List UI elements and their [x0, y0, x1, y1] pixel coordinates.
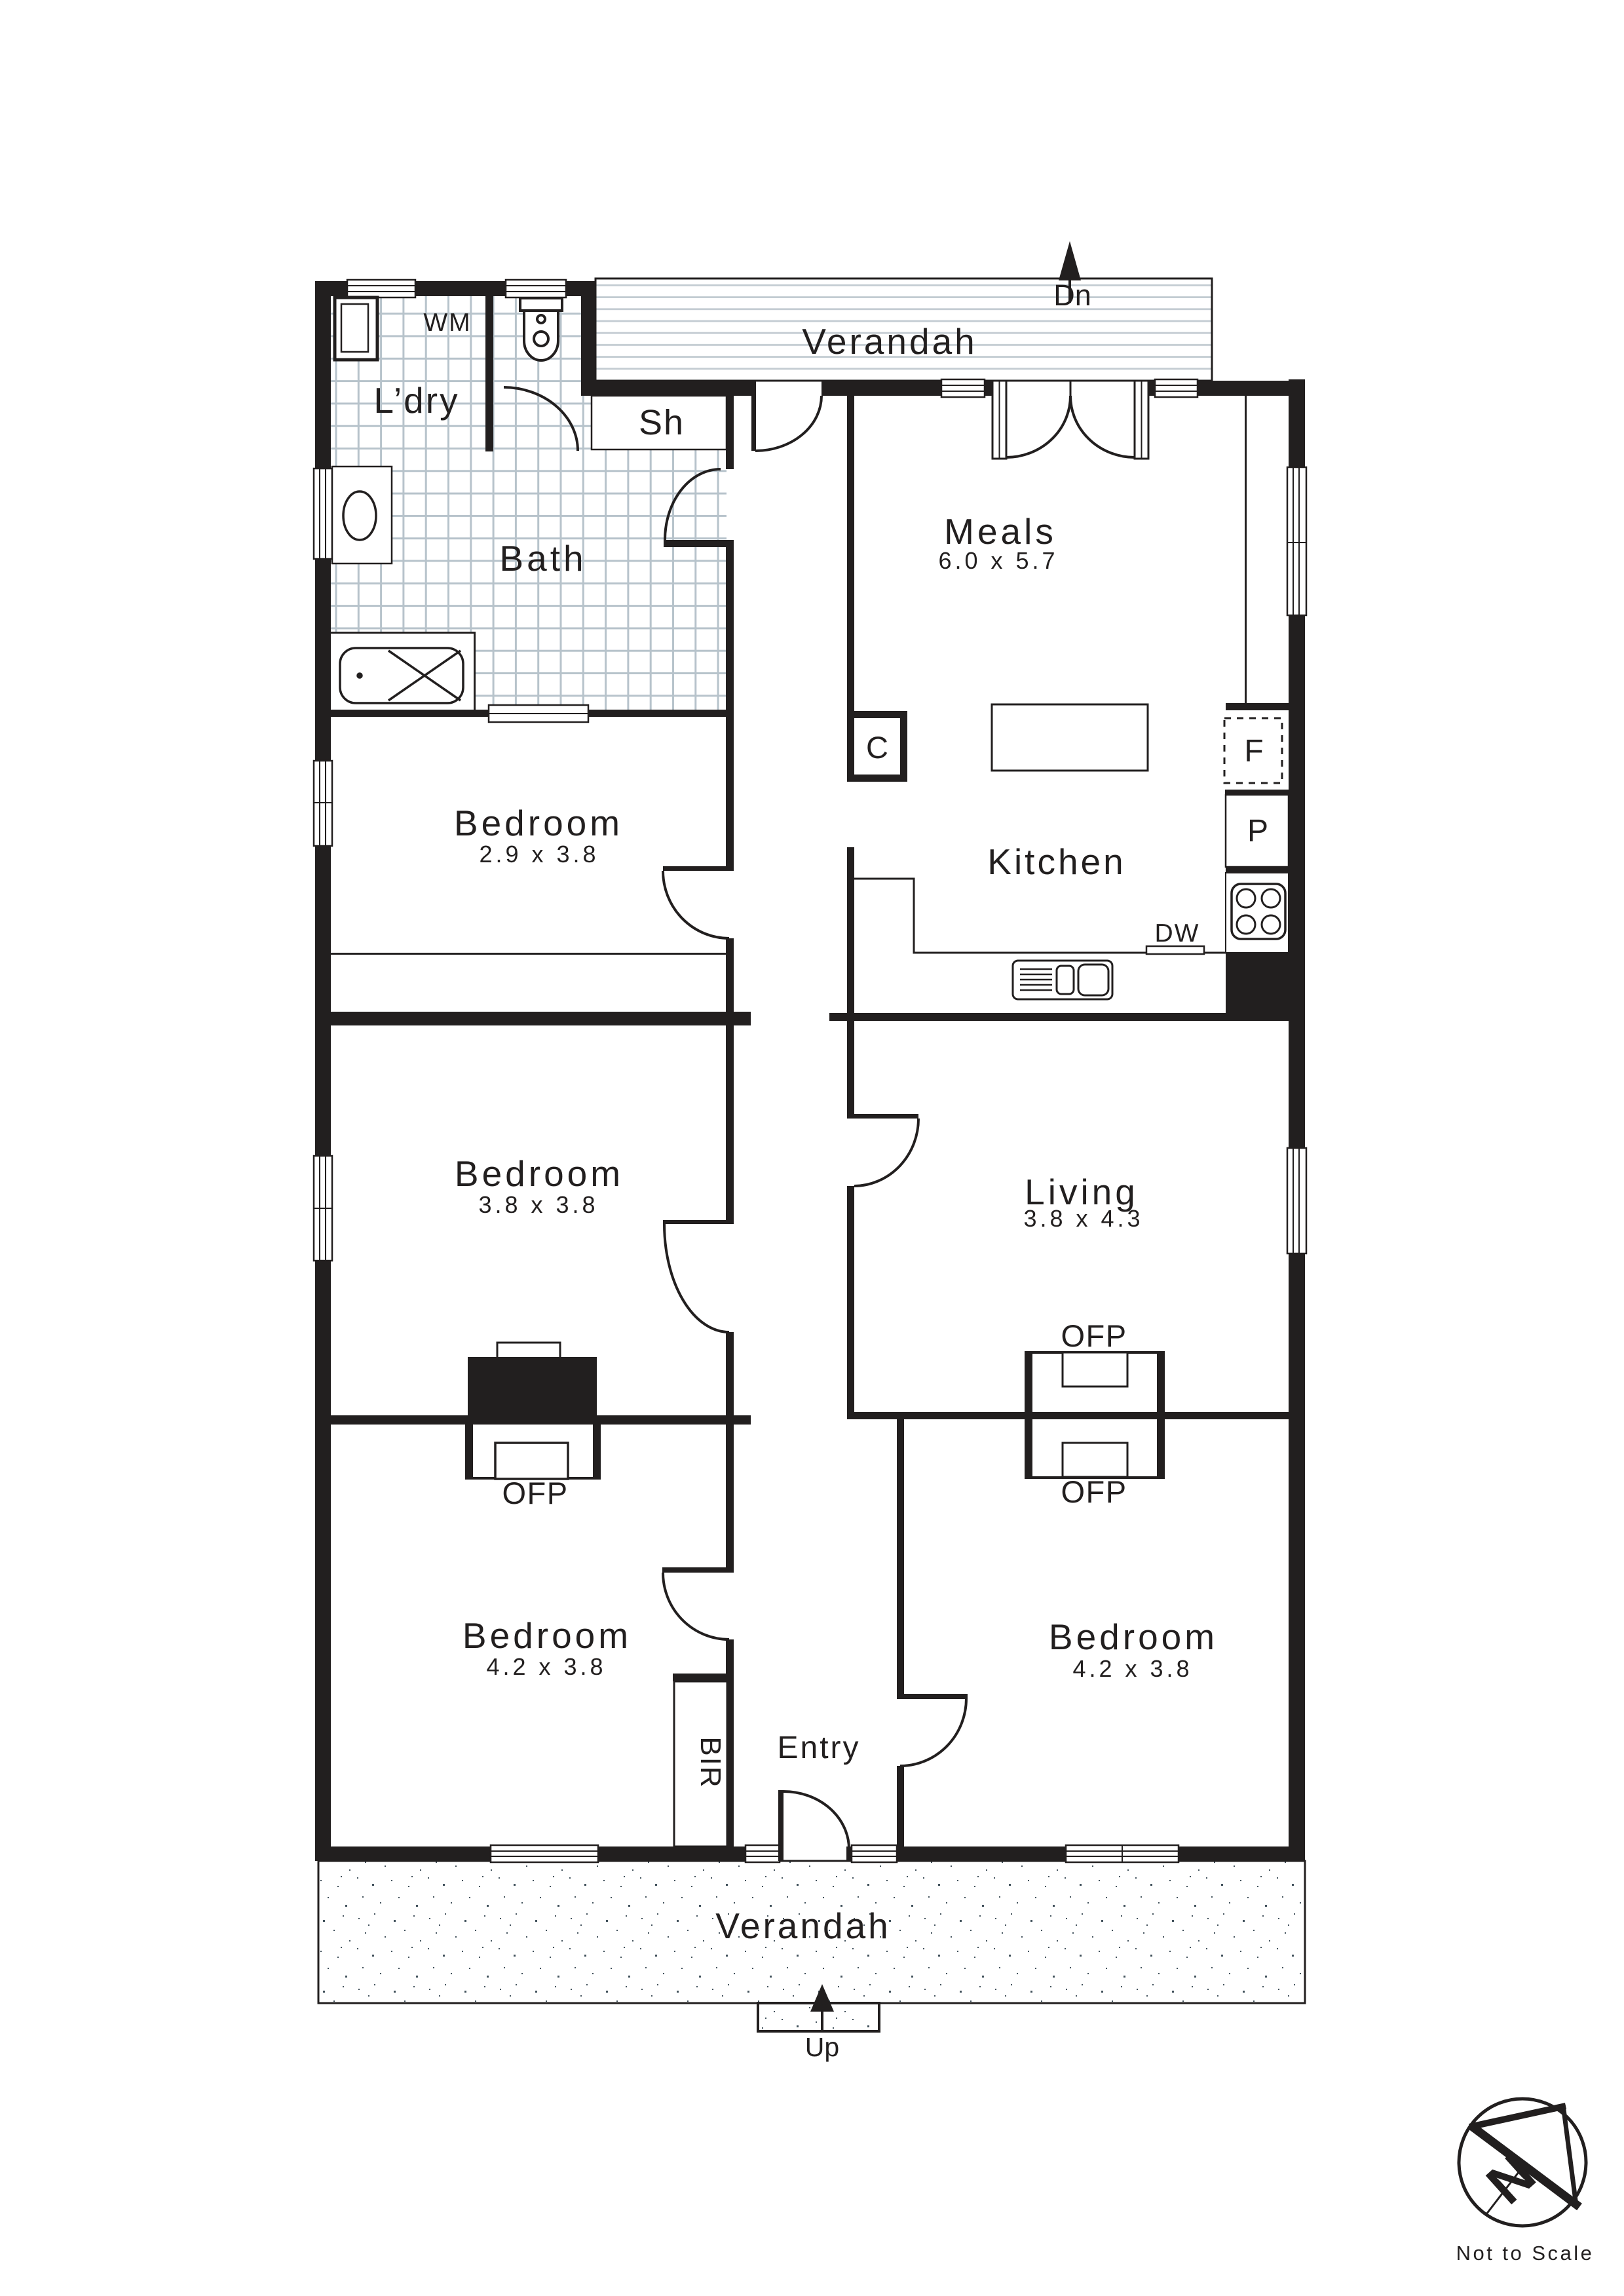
svg-text:OFP: OFP	[1061, 1474, 1127, 1509]
svg-text:Bath: Bath	[499, 538, 586, 579]
svg-text:OFP: OFP	[502, 1476, 568, 1510]
svg-text:Kitchen: Kitchen	[987, 841, 1125, 882]
svg-text:L’dry: L’dry	[373, 380, 459, 421]
svg-text:WM: WM	[423, 309, 471, 337]
svg-text:Verandah: Verandah	[802, 321, 977, 362]
svg-text:Entry: Entry	[777, 1731, 860, 1765]
svg-text:3.8 x 4.3: 3.8 x 4.3	[1023, 1205, 1143, 1232]
svg-text:4.2 x 3.8: 4.2 x 3.8	[1072, 1655, 1192, 1682]
svg-text:DW: DW	[1155, 919, 1200, 947]
svg-text:Bedroom: Bedroom	[1049, 1617, 1218, 1657]
svg-text:Bedroom: Bedroom	[463, 1615, 632, 1656]
svg-text:Dn: Dn	[1053, 278, 1091, 312]
svg-text:6.0 x 5.7: 6.0 x 5.7	[938, 547, 1058, 574]
svg-text:BIR: BIR	[694, 1736, 727, 1788]
svg-text:4.2 x 3.8: 4.2 x 3.8	[486, 1653, 606, 1680]
svg-text:C: C	[866, 730, 888, 765]
svg-text:Bedroom: Bedroom	[455, 1153, 624, 1194]
svg-text:OFP: OFP	[1061, 1318, 1127, 1353]
svg-text:Not to Scale: Not to Scale	[1456, 2242, 1595, 2265]
svg-text:P: P	[1247, 814, 1268, 849]
svg-text:Sh: Sh	[639, 403, 685, 442]
svg-text:Up: Up	[805, 2032, 839, 2062]
svg-text:Verandah: Verandah	[715, 1905, 891, 1946]
svg-text:F: F	[1244, 734, 1263, 769]
svg-text:Bedroom: Bedroom	[454, 803, 623, 843]
svg-text:Meals: Meals	[944, 511, 1057, 552]
svg-text:2.9 x 3.8: 2.9 x 3.8	[479, 841, 599, 868]
svg-text:3.8 x 3.8: 3.8 x 3.8	[478, 1191, 598, 1218]
